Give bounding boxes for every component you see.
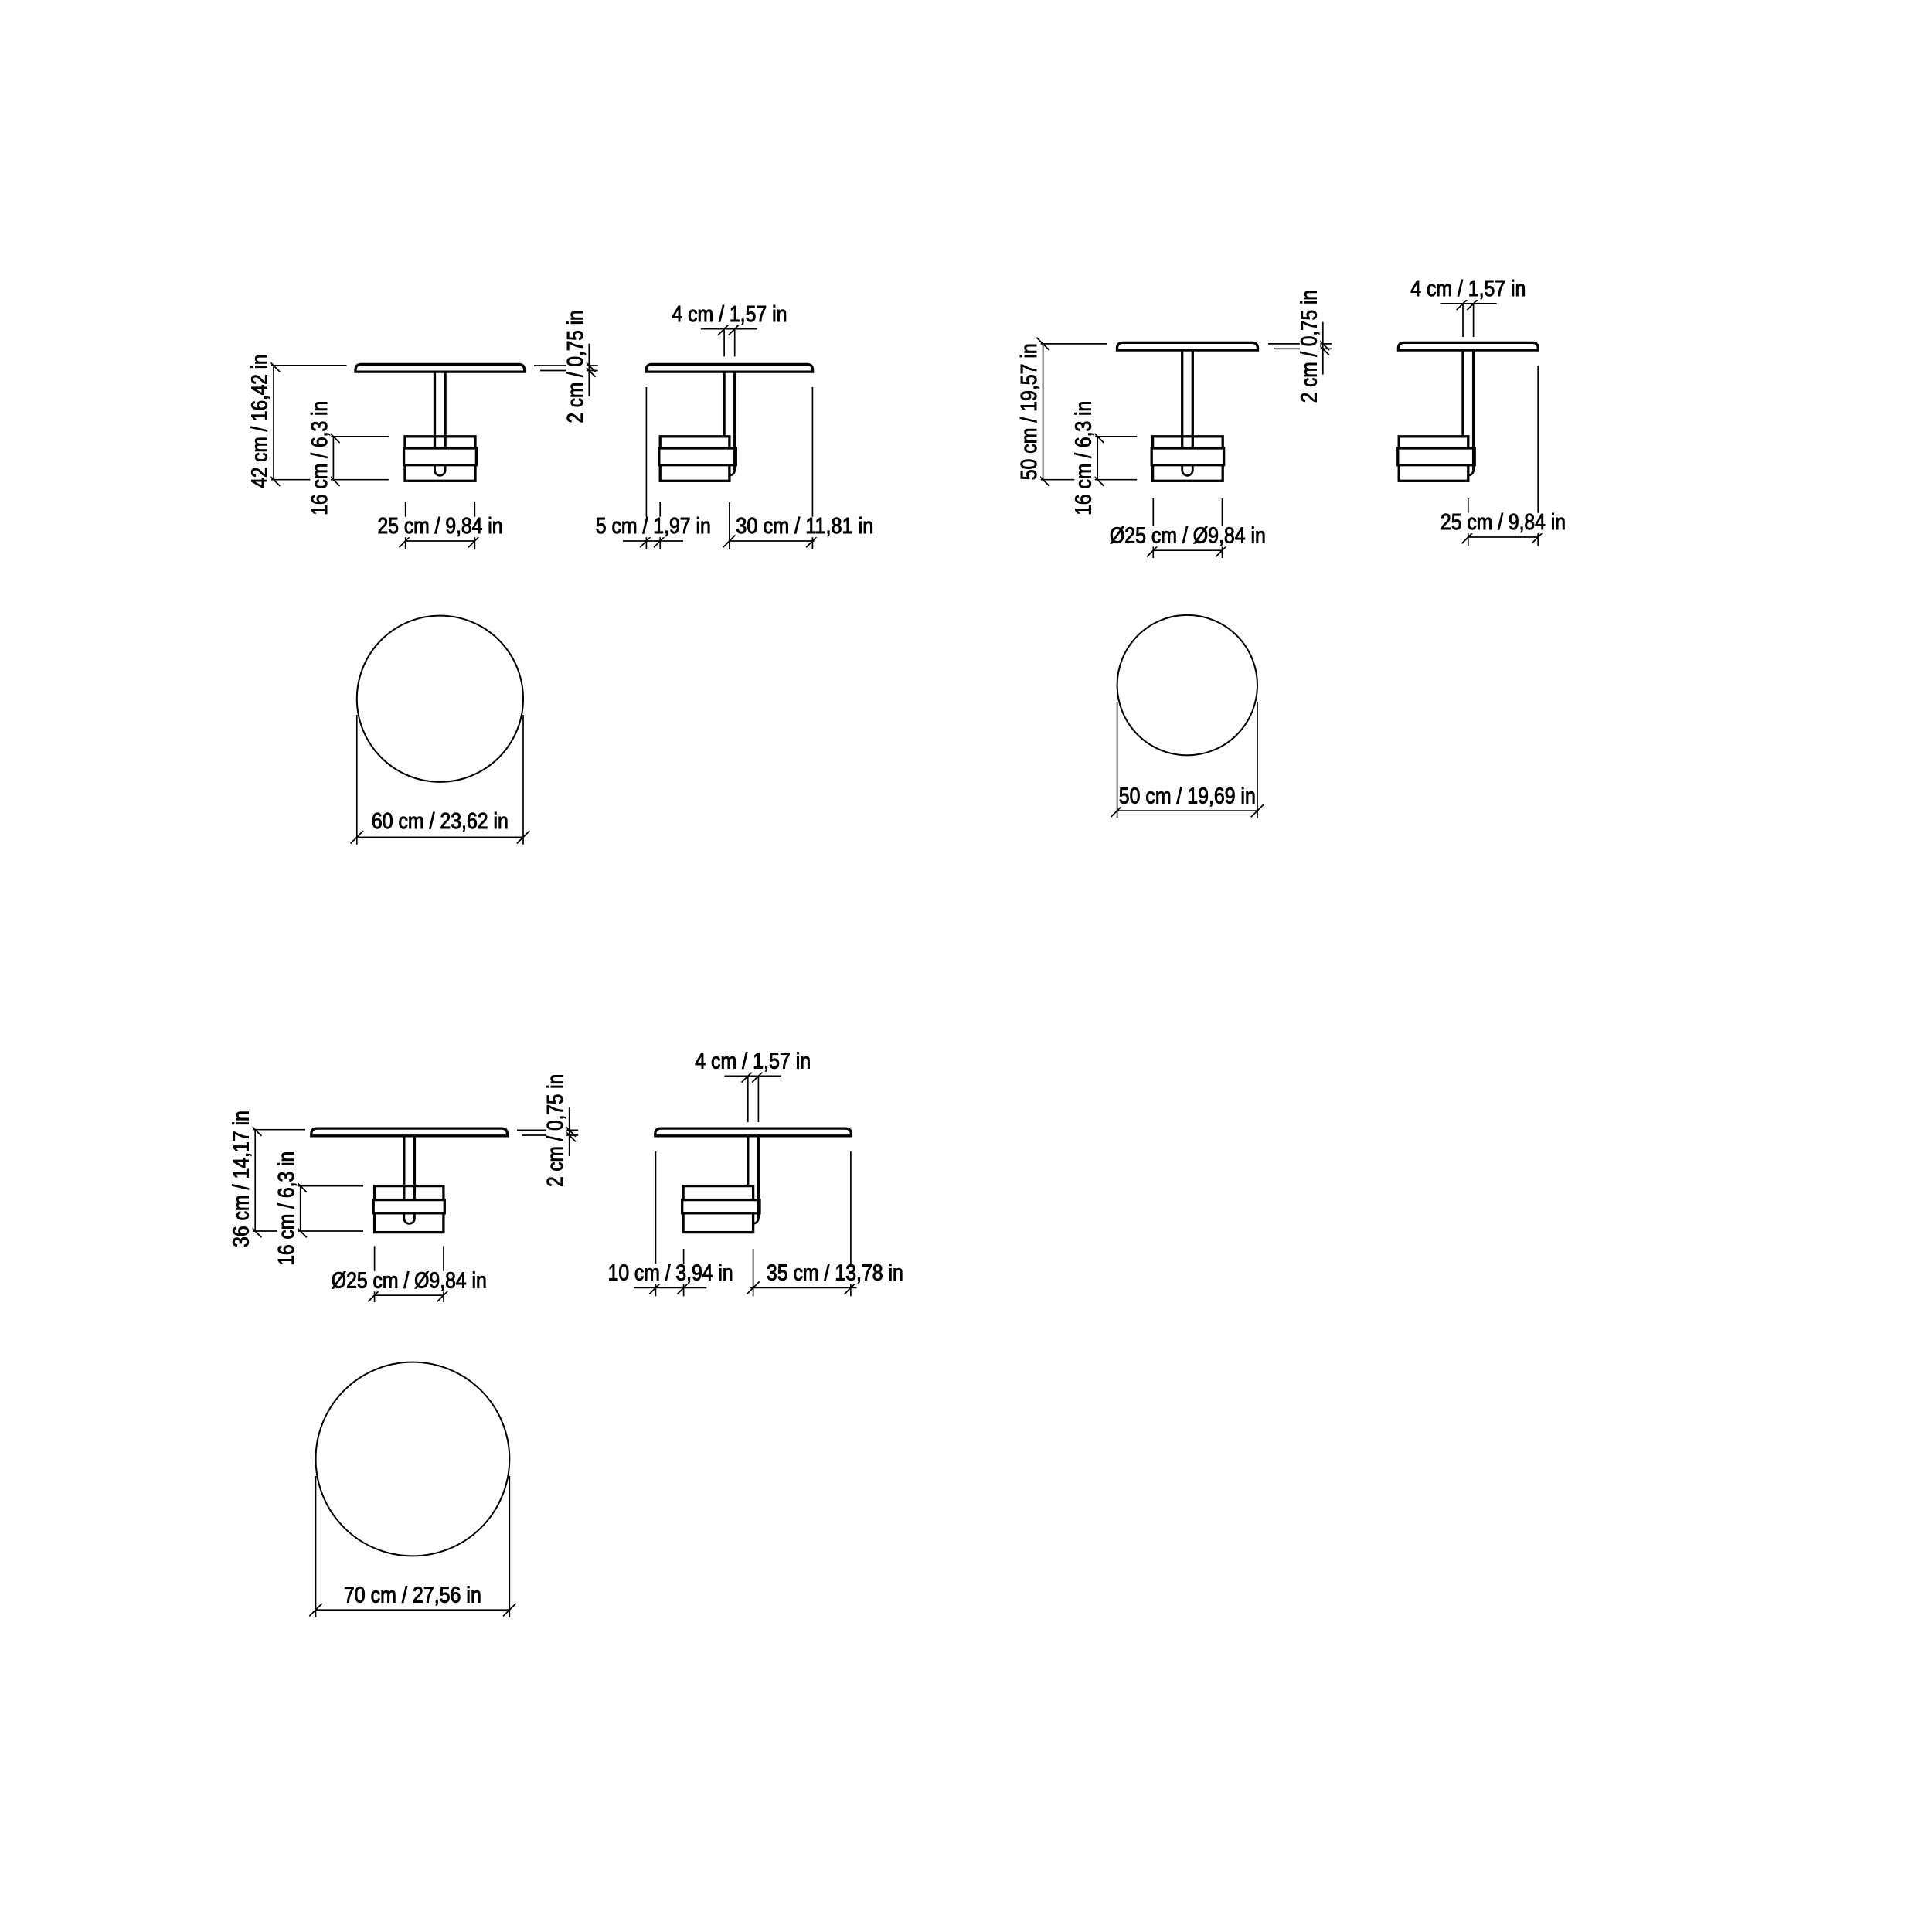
svg-text:35 cm / 13,78 in: 35 cm / 13,78 in <box>767 1261 903 1286</box>
svg-text:10 cm / 3,94 in: 10 cm / 3,94 in <box>608 1261 733 1286</box>
svg-text:4 cm / 1,57 in: 4 cm / 1,57 in <box>695 1049 811 1074</box>
svg-text:2 cm / 0,75 in: 2 cm / 0,75 in <box>543 1074 568 1187</box>
svg-text:50 cm / 19,69 in: 50 cm / 19,69 in <box>1119 784 1256 808</box>
svg-text:50 cm / 19,57 in: 50 cm / 19,57 in <box>1017 343 1042 480</box>
svg-text:4 cm / 1,57 in: 4 cm / 1,57 in <box>672 302 787 327</box>
svg-text:25 cm / 9,84 in: 25 cm / 9,84 in <box>1440 510 1566 535</box>
svg-text:4 cm / 1,57 in: 4 cm / 1,57 in <box>1410 277 1526 301</box>
svg-text:30 cm / 11,81 in: 30 cm / 11,81 in <box>736 514 873 539</box>
svg-text:70 cm / 27,56 in: 70 cm / 27,56 in <box>344 1583 481 1607</box>
svg-text:16 cm / 6,3 in: 16 cm / 6,3 in <box>274 1151 299 1266</box>
svg-text:2 cm / 0,75 in: 2 cm / 0,75 in <box>1297 290 1321 403</box>
svg-text:16 cm / 6,3 in: 16 cm / 6,3 in <box>308 401 332 515</box>
svg-text:5 cm / 1,97 in: 5 cm / 1,97 in <box>596 514 711 539</box>
svg-text:2 cm / 0,75 in: 2 cm / 0,75 in <box>563 311 588 423</box>
svg-text:42 cm / 16,42 in: 42 cm / 16,42 in <box>248 355 273 488</box>
svg-text:16 cm / 6,3 in: 16 cm / 6,3 in <box>1072 401 1097 515</box>
svg-text:60 cm / 23,62 in: 60 cm / 23,62 in <box>372 809 509 834</box>
svg-text:25 cm / 9,84 in: 25 cm / 9,84 in <box>378 514 503 539</box>
svg-text:Ø25 cm / Ø9,84 in: Ø25 cm / Ø9,84 in <box>1110 523 1266 548</box>
svg-text:Ø25 cm / Ø9,84 in: Ø25 cm / Ø9,84 in <box>332 1268 487 1293</box>
svg-text:36 cm / 14,17 in: 36 cm / 14,17 in <box>230 1111 254 1247</box>
